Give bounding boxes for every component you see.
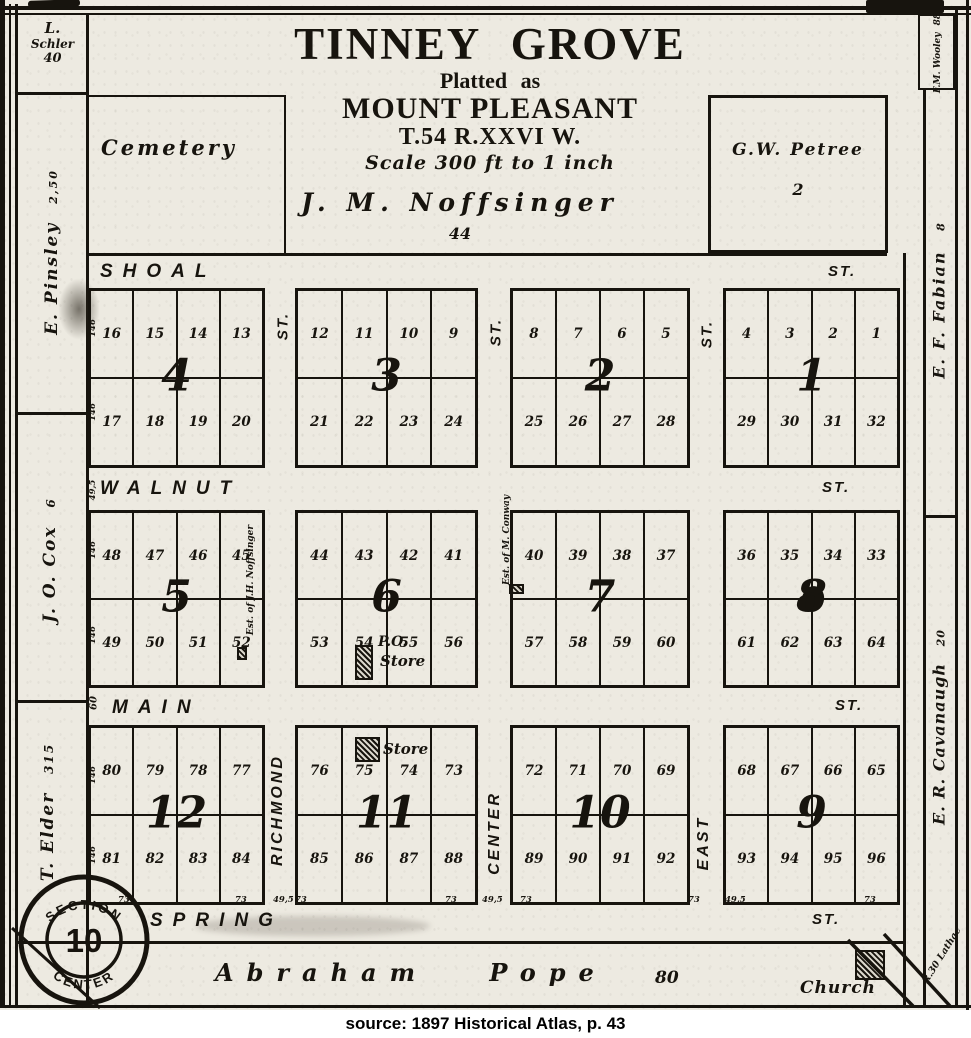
vertical-street-suffix-1: ST. — [275, 312, 292, 340]
cavanaugh-name: E. R. Cavanaugh — [930, 663, 949, 825]
lot-dimension: 73 — [295, 895, 307, 905]
block-8: 36353433616263648 — [723, 510, 900, 688]
edge-dimension: 146 — [88, 319, 98, 337]
fabian-parcel: E. F. Fabian 8 — [930, 221, 949, 379]
block-number-10: 10 — [569, 787, 630, 838]
block-number-12: 12 — [146, 787, 207, 838]
lot-92: 92 — [645, 816, 687, 902]
cox-parcel: J. O. Cox 6 — [40, 497, 60, 623]
border-left-3 — [15, 4, 18, 1006]
lot-76: 76 — [298, 728, 343, 814]
vertical-street-suffix-3: ST. — [699, 320, 716, 348]
church-marker — [855, 950, 885, 980]
wooley-acres: 88 — [933, 13, 943, 26]
street-east-label: EAST — [695, 816, 713, 871]
vertical-street-suffix-2: ST. — [488, 318, 505, 346]
lot-52: 52 — [221, 600, 262, 685]
spring-south-line — [17, 941, 905, 944]
lot-33: 33 — [856, 513, 897, 598]
lot-44: 44 — [298, 513, 343, 598]
border-top-thick — [0, 6, 971, 10]
block-number-5: 5 — [161, 571, 192, 622]
lot-5: 5 — [645, 291, 687, 377]
lot-40: 40 — [513, 513, 557, 598]
block-10: 727170698990919210 — [510, 725, 690, 905]
lot-21: 21 — [298, 379, 343, 465]
elder-name: T. Elder — [38, 792, 58, 881]
lot-96: 96 — [856, 816, 897, 902]
lot-61: 61 — [726, 600, 769, 685]
lot-56: 56 — [432, 600, 475, 685]
border-right-outer — [966, 0, 969, 1010]
border-left-2 — [9, 4, 11, 1006]
block-number-7: 7 — [585, 571, 616, 622]
lot-dimension: 73 — [445, 895, 457, 905]
right-strip-left-edge — [923, 90, 926, 1005]
lot-84: 84 — [221, 816, 262, 902]
lot-1: 1 — [856, 291, 897, 377]
lot-dimension: 49,5 — [482, 895, 503, 905]
right-strip-divider — [923, 515, 955, 518]
lot-dimension: 73 — [118, 895, 130, 905]
street-shoal-suffix: ST. — [828, 263, 856, 280]
fabian-name: E. F. Fabian — [930, 250, 949, 378]
lot-32: 32 — [856, 379, 897, 465]
block-12: 807978778182838412 — [88, 725, 265, 905]
street-walnut-suffix: ST. — [822, 479, 850, 496]
lot-53: 53 — [298, 600, 343, 685]
edge-dimension: 146 — [88, 403, 98, 421]
main-street-dim: 60 — [89, 696, 100, 710]
elder-parcel: T. Elder 315 — [38, 743, 58, 881]
left-strip-divider-2 — [17, 412, 88, 415]
stamp-arc-bottom-text: CENTER — [51, 968, 118, 993]
street-main-label: MAIN — [112, 697, 201, 719]
petree-name: G.W. Petree — [711, 140, 885, 160]
source-caption: source: 1897 Historical Atlas, p. 43 — [0, 1010, 971, 1038]
lot-64: 64 — [856, 600, 897, 685]
lot-dimension: 73 — [520, 895, 532, 905]
left-strip-divider-3 — [17, 700, 88, 703]
lot-dimension: 73 — [864, 895, 876, 905]
street-main-suffix: ST. — [835, 697, 863, 714]
schler-line1: L. — [17, 19, 88, 37]
cox-name: J. O. Cox — [40, 526, 60, 623]
lot-9: 9 — [432, 291, 475, 377]
lot-17: 17 — [91, 379, 134, 465]
block-number-9: 9 — [796, 787, 827, 838]
schler-acres: 40 — [17, 51, 88, 66]
lot-69: 69 — [645, 728, 687, 814]
lot-dimension: 49,5 — [725, 895, 746, 905]
fabian-acres: 8 — [935, 221, 948, 231]
lot-72: 72 — [513, 728, 557, 814]
cavanaugh-acres: 20 — [935, 629, 948, 646]
street-center-label: CENTER — [486, 791, 504, 875]
block-9: 68676665939495969 — [723, 725, 900, 905]
lot-20: 20 — [221, 379, 262, 465]
map-subtitle-name: MOUNT PLEASANT — [290, 92, 690, 126]
map-subtitle-platted: Platted as — [290, 68, 690, 94]
map-township-range: T.54 R.XXVI W. — [290, 124, 690, 151]
cox-acres: 6 — [44, 497, 58, 507]
pinsley-parcel: E. Pinsley 2,50 — [42, 169, 62, 335]
lot-dimension: 49,5 — [273, 895, 294, 905]
edge-dimension: 146 — [88, 846, 98, 864]
lot-85: 85 — [298, 816, 343, 902]
section-stamp-inner-ring — [47, 903, 121, 977]
lot-77: 77 — [221, 728, 262, 814]
street-walnut-label: WALNUT — [100, 478, 241, 500]
pope-acres: 80 — [655, 968, 679, 988]
block-number-4: 4 — [161, 350, 192, 401]
petree-acres: 2 — [711, 180, 885, 199]
lot-68: 68 — [726, 728, 769, 814]
svg-text:CENTER: CENTER — [51, 968, 118, 993]
block-7: 40393837575859607 — [510, 510, 690, 688]
lot-28: 28 — [645, 379, 687, 465]
lot-8: 8 — [513, 291, 557, 377]
street-richmond-label: RICHMOND — [269, 754, 287, 866]
lot-60: 60 — [645, 600, 687, 685]
edge-dimension: 146 — [88, 626, 98, 644]
edge-dimension: 146 — [88, 766, 98, 784]
right-strip-right-edge — [955, 6, 958, 1005]
schler-parcel: L. Schler 40 — [17, 15, 88, 92]
top-section-bottom-line — [86, 253, 887, 256]
lot-57: 57 — [513, 600, 557, 685]
petree-parcel: G.W. Petree 2 — [708, 95, 888, 253]
plat-map-page: TINNEY GROVE Platted as MOUNT PLEASANT T… — [0, 0, 971, 1038]
lot-41: 41 — [432, 513, 475, 598]
wooley-label: F.M. Wooley 88 — [933, 13, 943, 93]
border-top-thin — [0, 13, 971, 15]
parcel-noffsinger-acres: 44 — [290, 224, 630, 243]
street-spring-label: SPRING — [150, 910, 283, 932]
lot-dimension: 73 — [688, 895, 700, 905]
pope-name: Abraham Pope — [215, 958, 607, 987]
lot-45: 45 — [221, 513, 262, 598]
cavanaugh-parcel: E. R. Cavanaugh 20 — [930, 629, 949, 825]
lot-24: 24 — [432, 379, 475, 465]
map-right-edge — [903, 253, 906, 1005]
block-2: 8765252627282 — [510, 288, 690, 468]
block-3: 1211109212223243 — [295, 288, 478, 468]
map-title: TINNEY GROVE — [290, 18, 690, 70]
block-1: 4321293031321 — [723, 288, 900, 468]
lot-88: 88 — [432, 816, 475, 902]
wooley-name: F.M. Wooley — [933, 33, 943, 94]
border-left-band — [0, 0, 5, 1008]
street-spring-suffix: ST. — [812, 911, 840, 928]
pinsley-name: E. Pinsley — [42, 222, 62, 335]
road-diagonal-2 — [884, 934, 950, 1006]
lot-25: 25 — [513, 379, 557, 465]
lot-65: 65 — [856, 728, 897, 814]
block-number-2: 2 — [585, 350, 616, 401]
lot-37: 37 — [645, 513, 687, 598]
block-number-3: 3 — [371, 350, 402, 401]
edge-dimension: 146 — [88, 541, 98, 559]
cemetery-label: Cemetery — [101, 135, 237, 160]
border-bottom — [0, 1005, 971, 1008]
block-number-1: 1 — [796, 350, 827, 401]
scan-artifact — [866, 0, 944, 13]
block-6: 44434241535455566 — [295, 510, 478, 688]
plat-map: TINNEY GROVE Platted as MOUNT PLEASANT T… — [0, 0, 971, 1010]
source-caption-text: source: 1897 Historical Atlas, p. 43 — [346, 1014, 626, 1034]
block-5: 48474645495051525 — [88, 510, 265, 688]
lot-73: 73 — [432, 728, 475, 814]
lot-12: 12 — [298, 291, 343, 377]
lot-93: 93 — [726, 816, 769, 902]
schler-line2: Schler — [17, 37, 88, 51]
block-11: 767574738586878811 — [295, 725, 478, 905]
edge-dimension: 49,5 — [88, 480, 98, 501]
church-label: Church — [800, 978, 876, 998]
block-number-6: 6 — [371, 571, 402, 622]
cemetery-parcel: Cemetery — [86, 95, 286, 253]
street-shoal-label: SHOAL — [100, 261, 217, 283]
map-scale: Scale 300 ft to 1 inch — [290, 152, 690, 174]
lot-4: 4 — [726, 291, 769, 377]
lot-13: 13 — [221, 291, 262, 377]
lot-89: 89 — [513, 816, 557, 902]
block-number-11: 11 — [356, 787, 417, 838]
block-4: 16151413171819204 — [88, 288, 265, 468]
parcel-noffsinger-name: J. M. Noffsinger — [290, 188, 630, 217]
elder-acres: 315 — [42, 743, 56, 774]
lot-dimension: 73 — [235, 895, 247, 905]
lot-29: 29 — [726, 379, 769, 465]
pinsley-acres: 2,50 — [47, 169, 60, 204]
wooley-parcel: F.M. Wooley 88 — [918, 14, 955, 90]
left-strip-divider-1 — [17, 92, 88, 95]
block-number-8: 8 — [796, 571, 827, 622]
lot-36: 36 — [726, 513, 769, 598]
